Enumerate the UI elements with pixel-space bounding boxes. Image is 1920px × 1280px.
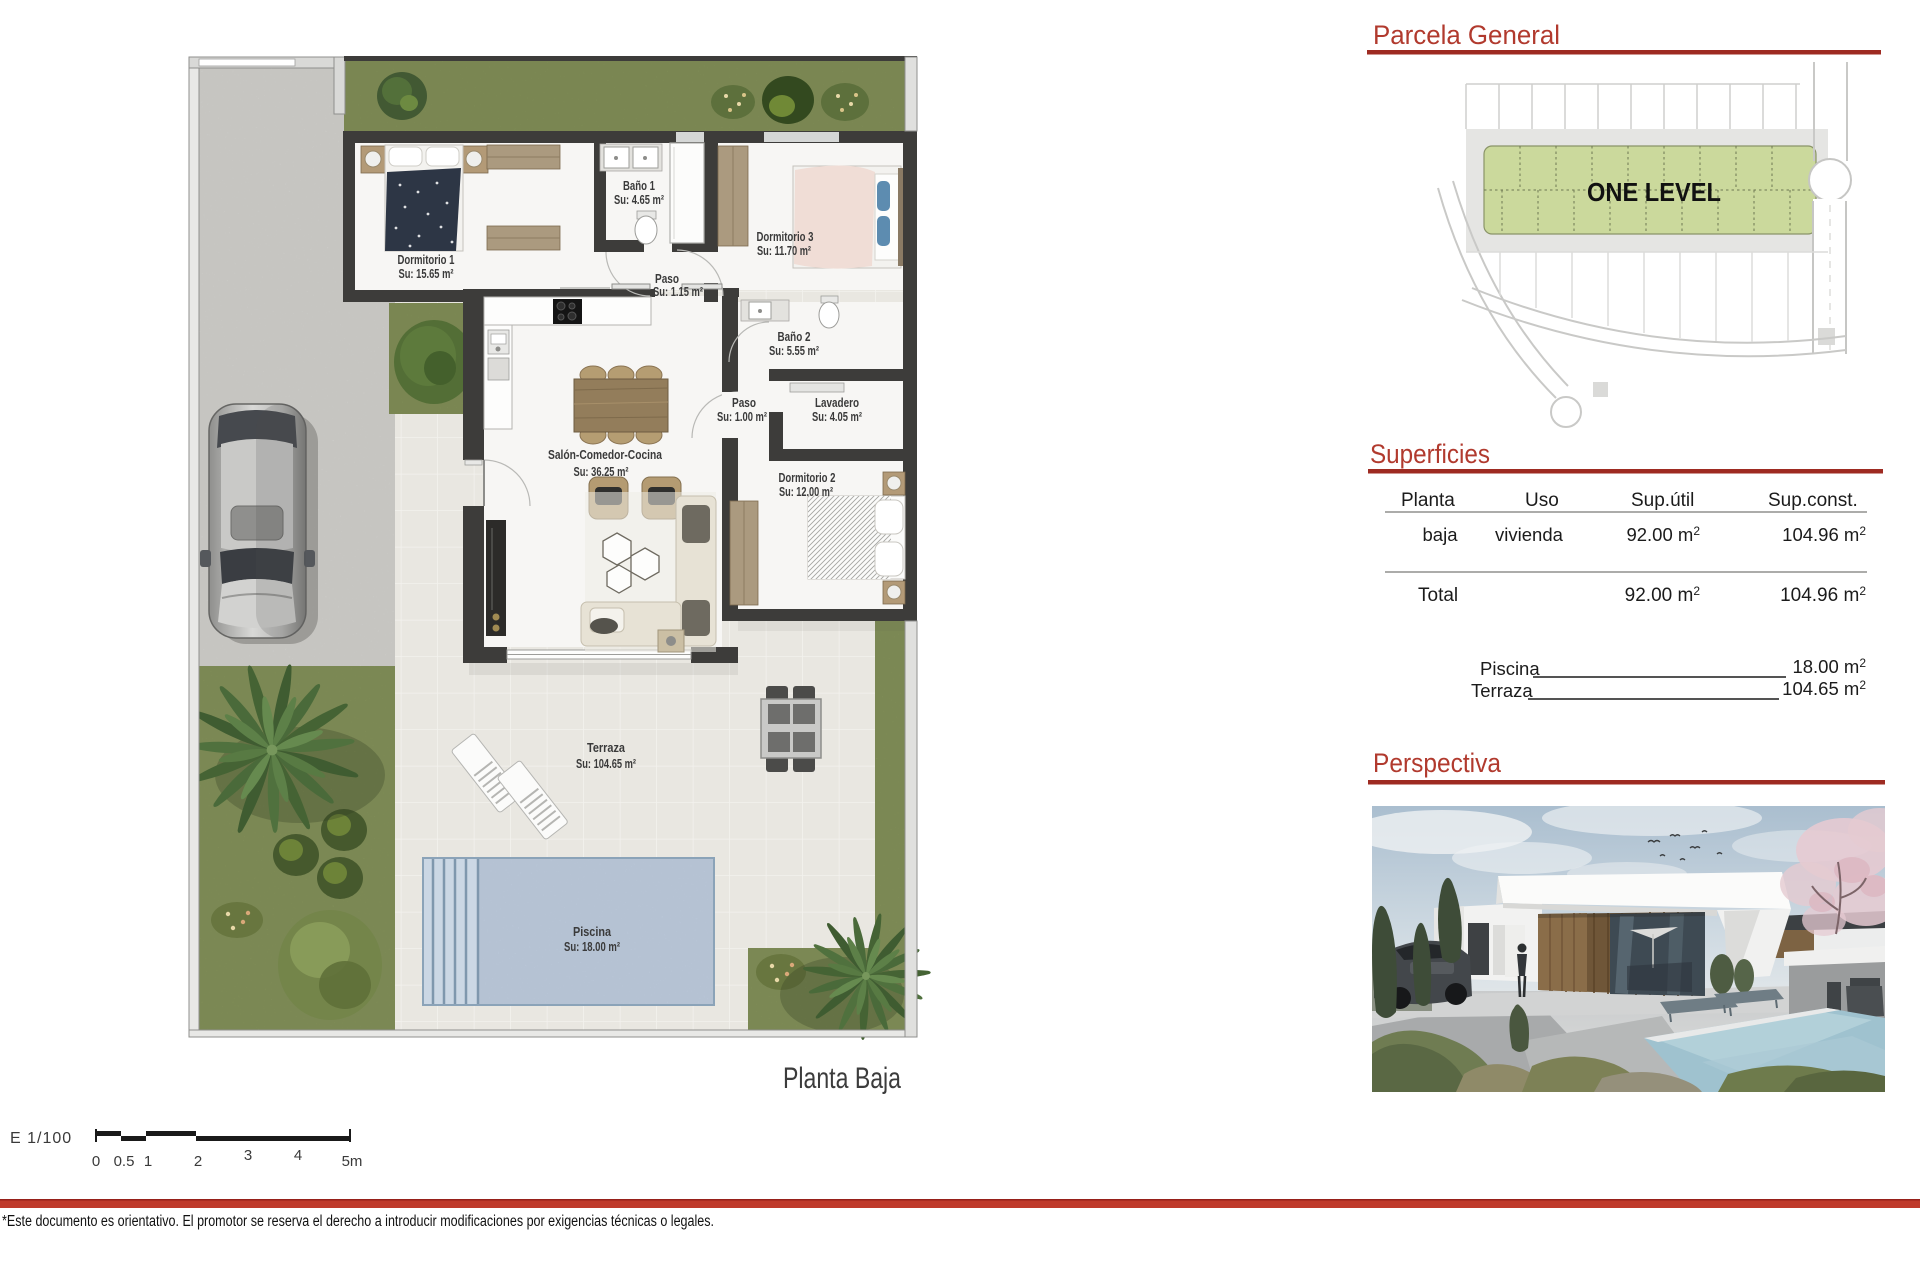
svg-text:ONE LEVEL: ONE LEVEL (1587, 177, 1721, 207)
svg-text:Dormitorio 2: Dormitorio 2 (779, 470, 836, 485)
svg-text:92.00 m2: 92.00 m2 (1626, 524, 1700, 545)
svg-text:104.65 m2: 104.65 m2 (1782, 678, 1866, 699)
svg-text:2: 2 (194, 1153, 202, 1170)
svg-text:Su: 18.00 m²: Su: 18.00 m² (564, 940, 620, 954)
svg-text:Sup.const.: Sup.const. (1768, 490, 1858, 511)
svg-text:Uso: Uso (1525, 490, 1559, 511)
svg-text:Terraza: Terraza (587, 740, 626, 755)
svg-text:4: 4 (294, 1147, 302, 1164)
svg-text:Baño 1: Baño 1 (623, 178, 655, 193)
svg-text:baja: baja (1423, 524, 1459, 545)
svg-text:Su: 5.55 m²: Su: 5.55 m² (769, 344, 819, 358)
svg-text:Su: 12.00 m²: Su: 12.00 m² (779, 485, 833, 499)
svg-text:Salón-Comedor-Cocina: Salón-Comedor-Cocina (548, 447, 663, 462)
svg-text:Planta Baja: Planta Baja (783, 1062, 901, 1095)
svg-text:Su: 1.00 m²: Su: 1.00 m² (717, 410, 767, 424)
svg-text:Terraza: Terraza (1471, 680, 1533, 701)
svg-text:0: 0 (92, 1153, 100, 1170)
svg-text:*Este documento es orientativo: *Este documento es orientativo. El promo… (2, 1213, 714, 1230)
svg-text:Dormitorio 3: Dormitorio 3 (757, 229, 814, 244)
svg-text:18.00 m2: 18.00 m2 (1792, 656, 1866, 677)
svg-text:Parcela General: Parcela General (1373, 20, 1560, 50)
svg-text:Planta: Planta (1401, 490, 1455, 511)
svg-text:92.00 m2: 92.00 m2 (1625, 584, 1701, 606)
svg-text:Su: 4.05 m²: Su: 4.05 m² (812, 410, 862, 424)
svg-text:Baño 2: Baño 2 (778, 329, 811, 344)
svg-text:104.96 m2: 104.96 m2 (1780, 584, 1866, 606)
svg-text:Su: 15.65 m²: Su: 15.65 m² (399, 267, 454, 281)
svg-text:Lavadero: Lavadero (815, 395, 859, 410)
svg-text:Piscina: Piscina (1480, 658, 1540, 679)
svg-text:Sup.útil: Sup.útil (1631, 490, 1694, 511)
svg-text:3: 3 (244, 1147, 252, 1164)
svg-text:Paso: Paso (732, 395, 756, 410)
svg-text:Superficies: Superficies (1370, 439, 1490, 469)
svg-text:Total: Total (1418, 585, 1458, 606)
svg-text:vivienda: vivienda (1495, 524, 1564, 545)
svg-text:104.96 m2: 104.96 m2 (1782, 524, 1866, 545)
svg-text:Su: 1.15 m²: Su: 1.15 m² (653, 285, 703, 299)
svg-text:5m: 5m (342, 1153, 363, 1170)
svg-text:Perspectiva: Perspectiva (1373, 748, 1502, 778)
svg-text:1: 1 (144, 1153, 152, 1170)
svg-text:Paso: Paso (655, 271, 679, 286)
svg-text:Piscina: Piscina (573, 924, 612, 939)
svg-text:Su: 104.65 m²: Su: 104.65 m² (576, 757, 636, 771)
svg-text:Su: 4.65 m²: Su: 4.65 m² (614, 193, 664, 207)
svg-text:Dormitorio 1: Dormitorio 1 (398, 252, 455, 267)
svg-text:Su: 11.70 m²: Su: 11.70 m² (757, 244, 811, 258)
svg-text:E 1/100: E 1/100 (10, 1130, 72, 1147)
svg-text:0.5: 0.5 (114, 1153, 135, 1170)
